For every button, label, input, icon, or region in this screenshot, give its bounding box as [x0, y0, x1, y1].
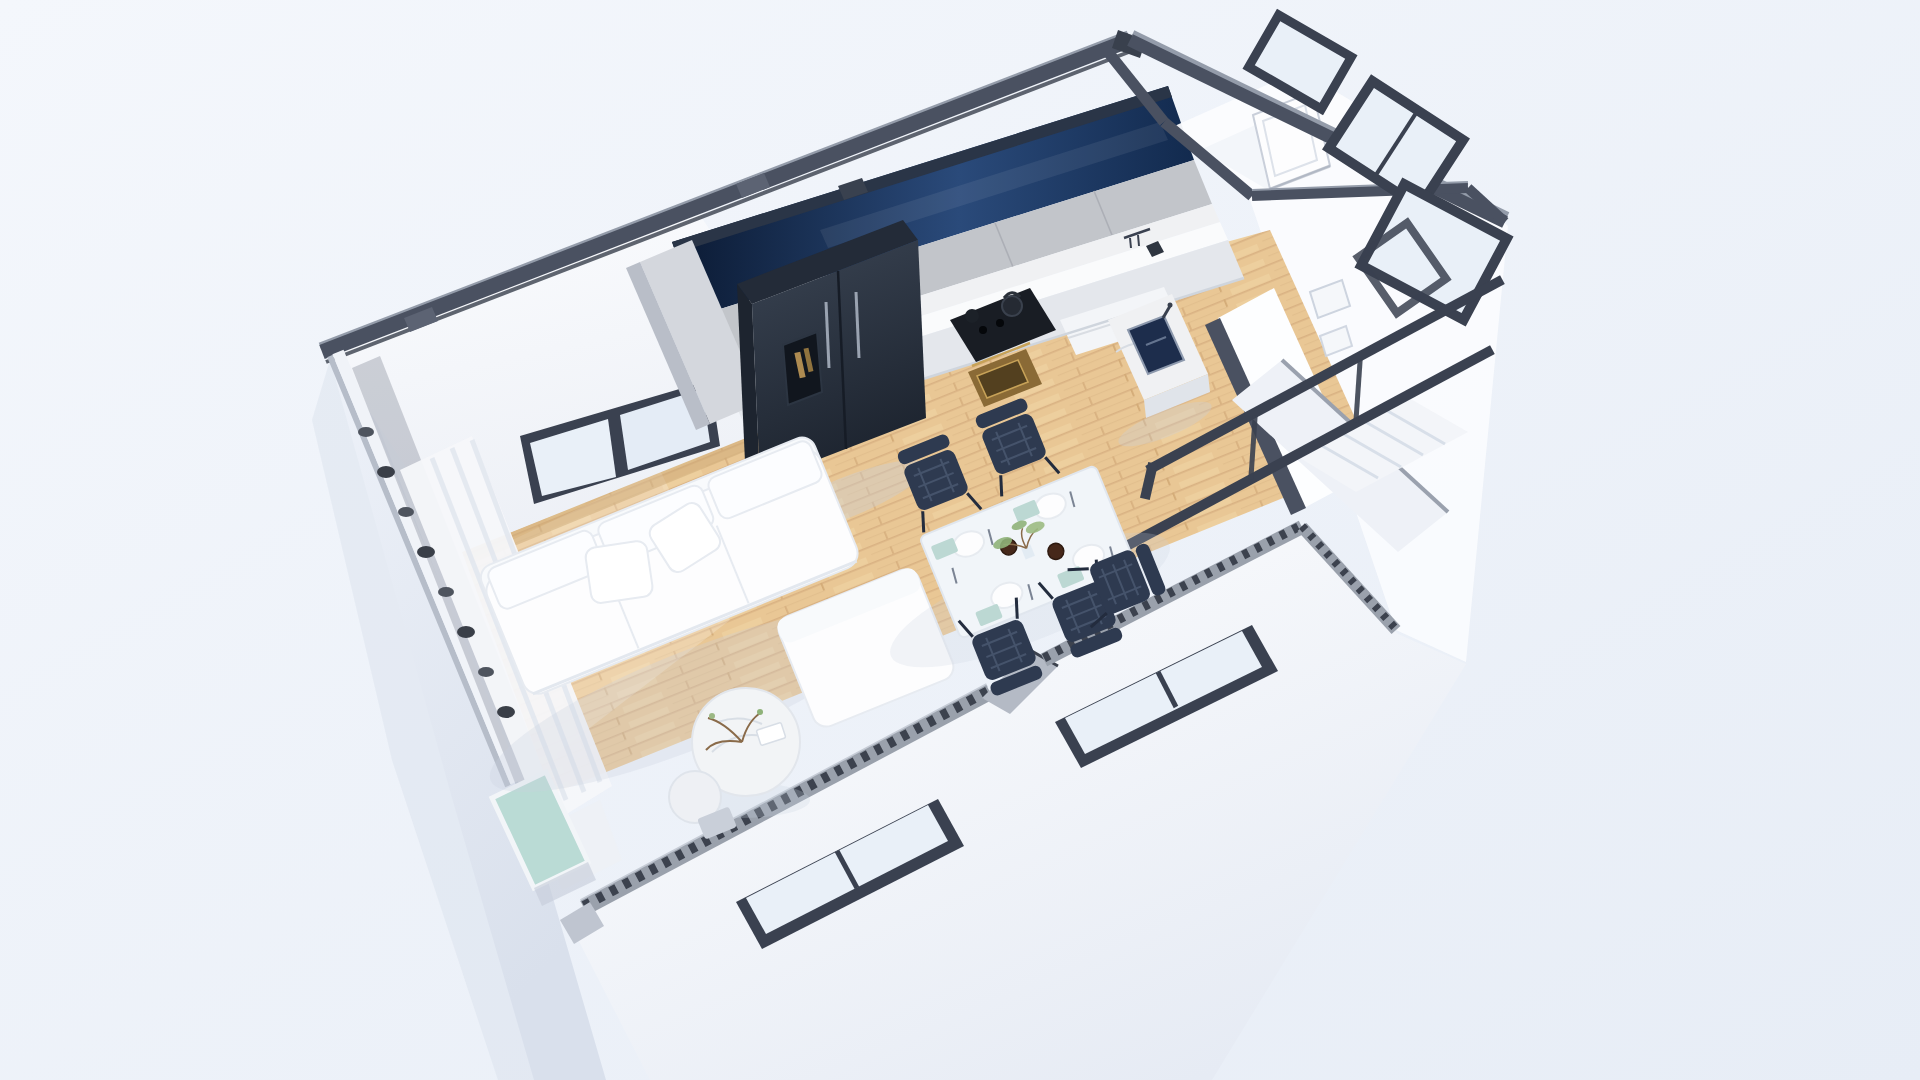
- throw-pillow-1: [584, 540, 653, 604]
- plant-1: [358, 427, 374, 437]
- plant-5: [438, 587, 454, 597]
- utensil-1: [1130, 238, 1131, 248]
- floorplan-svg: [0, 0, 1920, 1080]
- plant-7: [478, 667, 494, 677]
- kettle: [1002, 296, 1022, 316]
- plant-2: [377, 466, 395, 478]
- faucet-head: [1168, 303, 1173, 308]
- plant-6: [457, 626, 475, 638]
- burner-2: [996, 319, 1004, 327]
- plant-8: [497, 706, 515, 718]
- leaf-2: [757, 709, 763, 715]
- floorplan-render: [0, 0, 1920, 1080]
- burner-1: [979, 326, 987, 334]
- plant-4: [417, 546, 435, 558]
- utensil-2: [1138, 235, 1139, 246]
- plant-3: [398, 507, 414, 517]
- leaf-1: [709, 713, 715, 719]
- handrail-upper-bend: [1146, 468, 1152, 494]
- pot: [965, 309, 979, 323]
